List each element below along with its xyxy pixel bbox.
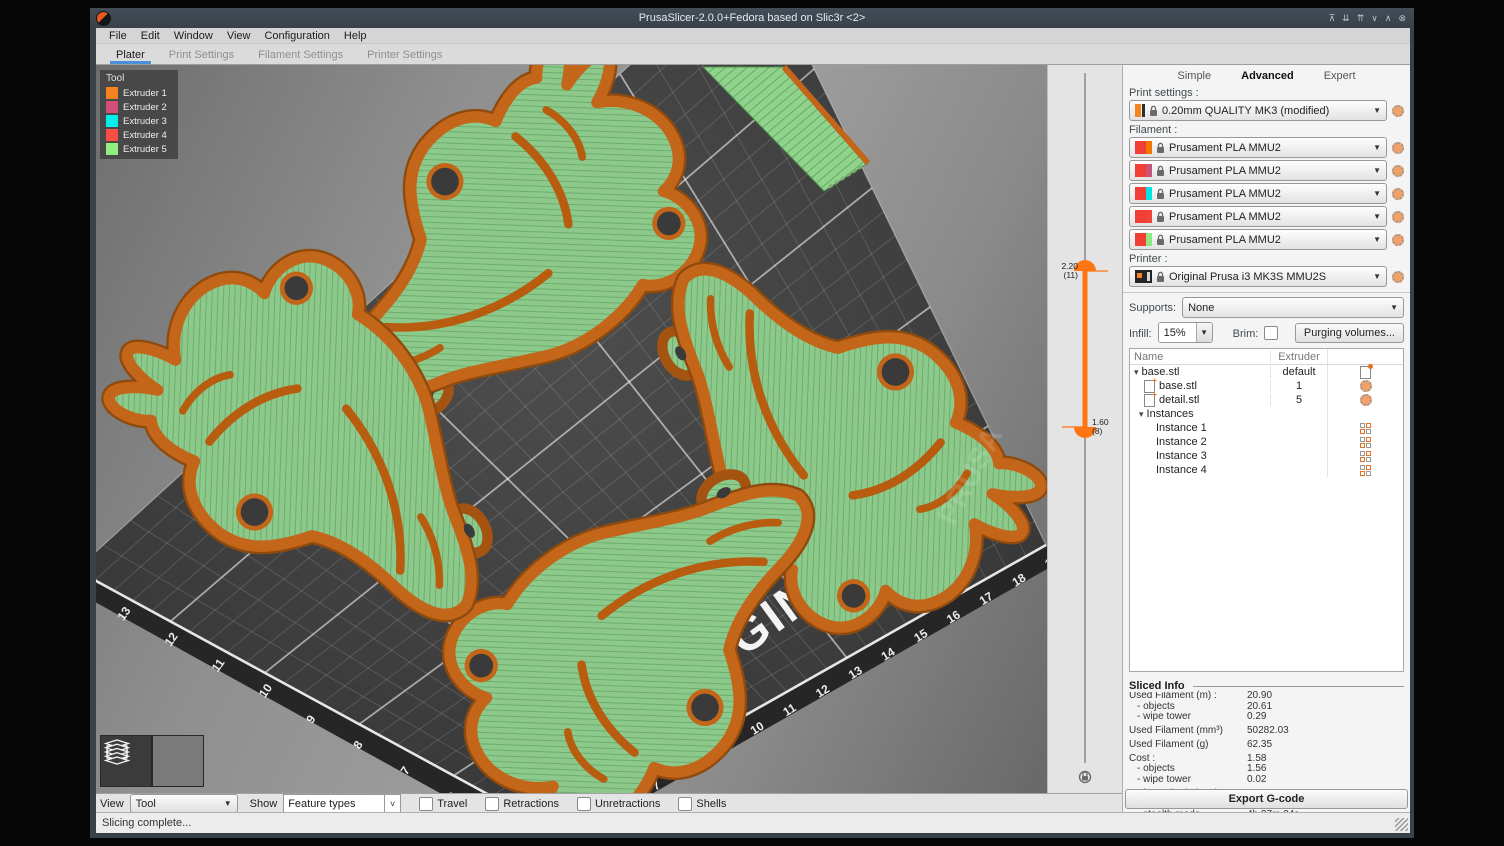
printer-gear-icon[interactable] [1392,271,1404,283]
filament-3-color-swatch [1135,187,1152,200]
window-controls: ⊼ ⇊ ⇈ ∨ ∧ ⊗ [1329,8,1406,28]
purging-volumes-button[interactable]: Purging volumes... [1295,323,1404,343]
extruder-5-color-swatch [106,143,118,155]
layer-range-slider[interactable]: 2.20 (11) 1.60 (8) [1047,65,1122,793]
lock-icon [1156,142,1165,154]
infill-label: Infill: [1129,328,1152,340]
window-raise-icon[interactable]: ⇈ [1357,8,1365,28]
unretractions-checkbox-group: Unretractions [577,797,660,811]
mode-expert[interactable]: Expert [1324,70,1356,82]
filament-5-gear-icon[interactable] [1392,234,1404,246]
instance-grid-icon[interactable] [1360,451,1371,462]
dropdown-arrow-icon: ▼ [1390,303,1398,312]
menu-edit[interactable]: Edit [134,30,167,42]
instance-row-1[interactable]: Instance 1 [1130,421,1403,435]
filament-1-gear-icon[interactable] [1392,142,1404,154]
object-row-base-stl[interactable]: ▾ base.stl default [1130,365,1403,379]
instance-row-2[interactable]: Instance 2 [1130,435,1403,449]
extruder-3-color-swatch [106,115,118,127]
part-row-detail-stl[interactable]: + detail.stl 5 [1130,393,1403,407]
dropdown-arrow-icon: ▼ [1373,235,1381,244]
instance-grid-icon[interactable] [1360,465,1371,476]
print-profile-icon [1135,104,1145,117]
legend-extruder-5: Extruder 5 [106,143,178,155]
travel-checkbox-group: Travel [419,797,467,811]
mode-advanced[interactable]: Advanced [1241,70,1294,82]
show-label: Show [250,798,278,810]
instance-grid-icon[interactable] [1360,437,1371,448]
object-list-header: Name Extruder [1130,349,1403,365]
dropdown-arrow-icon: ▼ [1373,106,1381,115]
collapse-caret-icon[interactable]: ▾ [1139,409,1144,420]
menu-configuration[interactable]: Configuration [257,30,336,42]
lock-icon [1156,234,1165,246]
collapse-caret-icon[interactable]: ▾ [1134,367,1139,378]
printer-label: Printer : [1129,253,1404,265]
brim-label: Brim: [1233,328,1259,340]
layers-preview-button[interactable] [152,735,204,787]
menu-bar: File Edit Window View Configuration Help [96,28,1410,44]
instance-row-3[interactable]: Instance 3 [1130,449,1403,463]
slider-lock-icon[interactable] [1080,772,1091,783]
instance-row-4[interactable]: Instance 4 [1130,463,1403,477]
extruder-4-color-swatch [106,129,118,141]
print-settings-gear-icon[interactable] [1392,105,1404,117]
brim-checkbox[interactable] [1264,326,1278,340]
status-bar: Slicing complete... [96,812,1410,833]
filament-1-color-swatch [1135,141,1152,154]
dropdown-arrow-icon: ▼ [1373,143,1381,152]
filament-4-gear-icon[interactable] [1392,211,1404,223]
filament-2-color-swatch [1135,164,1152,177]
menu-window[interactable]: Window [167,30,220,42]
view-label: View [100,798,124,810]
travel-checkbox[interactable] [419,797,433,811]
layers-icon [100,735,134,769]
shells-checkbox[interactable] [678,797,692,811]
lock-icon [1156,188,1165,200]
filament-label: Filament : [1129,124,1404,136]
slider-upper-layer: (11) [1064,270,1079,280]
legend-extruder-2: Extruder 2 [106,101,178,113]
column-name[interactable]: Name [1130,351,1270,363]
filament-select-3[interactable]: Prusament PLA MMU2 ▼ [1129,183,1387,204]
shells-checkbox-group: Shells [678,797,726,811]
window-lower-icon[interactable]: ⇊ [1342,8,1350,28]
filament-select-4[interactable]: Prusament PLA MMU2 ▼ [1129,206,1387,227]
instance-grid-icon[interactable] [1360,423,1371,434]
slider-lower-layer: (8) [1092,426,1103,436]
mode-simple[interactable]: Simple [1178,70,1212,82]
feature-types-select[interactable]: Feature types [283,794,385,813]
retractions-checkbox[interactable] [485,797,499,811]
legend-extruder-1: Extruder 1 [106,87,178,99]
plater-3d-viewport[interactable]: 131211109876678910111213141516171819 GIN… [96,65,1047,793]
object-list: Name Extruder ▾ base.stl default + base.… [1129,348,1404,672]
sliced-info-title: Sliced Info [1129,680,1193,692]
view-select[interactable]: Tool ▼ [130,794,238,813]
unretractions-checkbox[interactable] [577,797,591,811]
part-settings-gear-icon[interactable] [1360,380,1372,392]
dropdown-arrow-icon: ▼ [1373,166,1381,175]
dropdown-arrow-icon: ▼ [1373,212,1381,221]
legend-extruder-4: Extruder 4 [106,129,178,141]
menu-help[interactable]: Help [337,30,374,42]
filament-3-gear-icon[interactable] [1392,188,1404,200]
window-close-icon[interactable]: ⊗ [1398,8,1406,28]
dropdown-arrow-icon: ▼ [204,799,232,808]
menu-view[interactable]: View [220,30,258,42]
feature-types-arrow-button[interactable]: ˅ [385,794,401,813]
resize-grip[interactable] [1395,818,1408,831]
part-row-base-stl[interactable]: + base.stl 1 [1130,379,1403,393]
retractions-checkbox-group: Retractions [485,797,559,811]
main-tab-bar: Plater Print Settings Filament Settings … [96,44,1410,65]
supports-select[interactable]: None ▼ [1182,297,1404,318]
preview-toolbar: View Tool ▼ Show Feature types ˅ T [96,793,1122,813]
infill-select[interactable]: 15% ▼ [1158,322,1213,343]
window-minimize-icon[interactable]: ∨ [1371,8,1378,28]
supports-label: Supports: [1129,302,1176,314]
extruder-1-color-swatch [106,87,118,99]
menu-file[interactable]: File [102,30,134,42]
printer-icon [1135,270,1152,283]
print-settings-select[interactable]: 0.20mm QUALITY MK3 (modified) ▼ [1129,100,1387,121]
part-settings-gear-icon[interactable] [1360,394,1372,406]
filament-select-5[interactable]: Prusament PLA MMU2 ▼ [1129,229,1387,250]
object-settings-icon[interactable] [1360,366,1371,379]
legend-title: Tool [106,73,178,84]
export-gcode-button[interactable]: Export G-code [1125,789,1408,809]
printer-select[interactable]: Original Prusa i3 MK3S MMU2S ▼ [1129,266,1387,287]
filament-4-color-swatch [1135,210,1152,223]
tab-plater[interactable]: Plater [104,47,157,64]
lock-icon [1149,105,1158,117]
mode-tabs: Simple Advanced Expert [1129,68,1404,84]
extruder-2-color-swatch [106,101,118,113]
instances-group-row[interactable]: ▾ Instances [1130,407,1403,421]
settings-panel: Simple Advanced Expert Print settings : … [1122,65,1410,812]
legend-extruder-3: Extruder 3 [106,115,178,127]
window-maximize-icon[interactable]: ∧ [1385,8,1392,28]
window-shade-icon[interactable]: ⊼ [1329,8,1336,28]
dropdown-arrow-icon: ▼ [1373,189,1381,198]
lock-icon [1156,271,1165,283]
dropdown-arrow-icon: ▼ [1373,272,1381,281]
tab-print-settings[interactable]: Print Settings [157,47,246,64]
prusaslicer-window: PrusaSlicer-2.0.0+Fedora based on Slic3r… [90,8,1414,838]
window-title: PrusaSlicer-2.0.0+Fedora based on Slic3r… [90,12,1414,24]
lock-icon [1156,165,1165,177]
print-settings-label: Print settings : [1129,87,1404,99]
tab-printer-settings[interactable]: Printer Settings [355,47,454,64]
dropdown-arrow-icon[interactable]: ▼ [1196,323,1212,342]
view-mode-buttons [100,735,204,787]
status-text: Slicing complete... [96,817,191,829]
tab-filament-settings[interactable]: Filament Settings [246,47,355,64]
filament-select-1[interactable]: Prusament PLA MMU2 ▼ [1129,137,1387,158]
tool-legend: Tool Extruder 1 Extruder 2 Extruder 3 [100,70,178,159]
column-extruder[interactable]: Extruder [1270,351,1327,363]
filament-select-2[interactable]: Prusament PLA MMU2 ▼ [1129,160,1387,181]
lock-icon [1156,211,1165,223]
title-bar[interactable]: PrusaSlicer-2.0.0+Fedora based on Slic3r… [90,8,1414,28]
filament-5-color-swatch [1135,233,1152,246]
add-part-icon: + [1144,394,1155,407]
filament-2-gear-icon[interactable] [1392,165,1404,177]
